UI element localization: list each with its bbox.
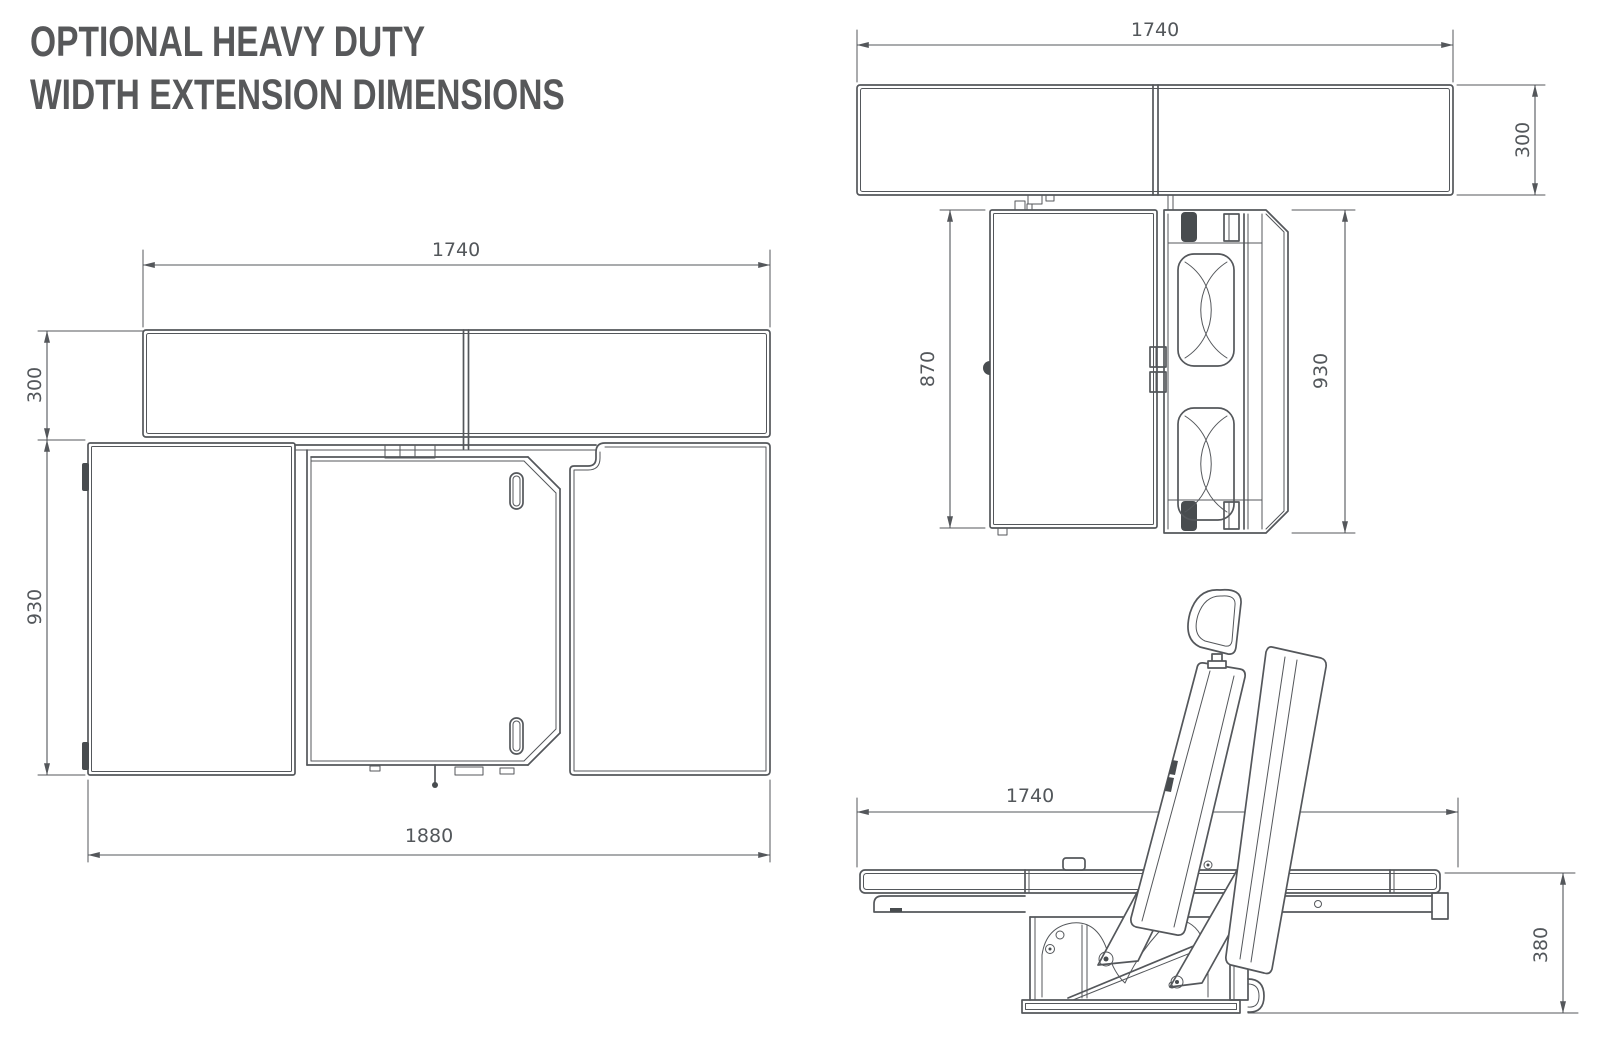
dim-extension-depth: 300 [24, 331, 143, 440]
hinge-tab [82, 463, 89, 491]
seat-base-panel [295, 445, 596, 788]
sheet-title-line-1: OPTIONAL HEAVY DUTY [30, 16, 565, 69]
dim-platform-depth: 870 [917, 210, 985, 528]
extension-band-panels [857, 85, 1453, 210]
hinge-clamp [1181, 212, 1197, 242]
sheet-title: OPTIONAL HEAVY DUTY WIDTH EXTENSION DIME… [30, 16, 565, 122]
strap-slot [510, 473, 523, 509]
plan-view-extensions-open: 1740 300 930 [0, 230, 810, 862]
dim-overall-width: 1880 [88, 780, 770, 862]
folded-platform-panel [983, 201, 1157, 535]
hinge-bracket [1224, 214, 1239, 241]
sheet-title-line-2: WIDTH EXTENSION DIMENSIONS [30, 69, 565, 122]
dim-frame-depth: 930 [1292, 210, 1355, 533]
drawing-sheet: OPTIONAL HEAVY DUTY WIDTH EXTENSION DIME… [0, 0, 1600, 1047]
side-elevation-view: 1740 [820, 555, 1600, 1047]
dim-label-frame-depth: 930 [1310, 353, 1332, 389]
plan-view-seat-folded: 1740 300 [820, 10, 1600, 555]
dim-label-extension-depth: 300 [1512, 122, 1534, 158]
dim-platform-height: 380 [1248, 873, 1578, 1013]
dim-label-platform-height: 380 [1530, 927, 1552, 963]
dim-label-platform-depth: 870 [917, 351, 939, 387]
dim-backrest-width: 1740 [143, 239, 770, 327]
dim-extension-depth: 300 [1457, 85, 1545, 195]
dim-label-overall-length: 1740 [1006, 785, 1054, 807]
dim-bed-depth: 930 [24, 440, 85, 775]
backrest-panels [143, 330, 770, 449]
left-extension-panel [82, 443, 295, 775]
base-plate [1022, 1000, 1240, 1013]
right-extension-panel [570, 443, 770, 775]
hinge-bracket [1224, 502, 1239, 529]
surface-bracket [1063, 858, 1085, 870]
dim-backrest-width: 1740 [857, 19, 1453, 82]
seat-cushion [1178, 254, 1234, 366]
dim-label-bed-depth: 930 [24, 589, 46, 625]
dim-label-extension-depth: 300 [24, 367, 46, 403]
dim-label-backrest-width: 1740 [1131, 19, 1179, 41]
dim-label-backrest-width: 1740 [432, 239, 480, 261]
latch-knob [983, 361, 990, 375]
seat-frame [1150, 210, 1288, 533]
dim-label-overall-width: 1880 [405, 825, 453, 847]
hinge-tab [82, 742, 89, 770]
strap-slot [510, 718, 523, 754]
